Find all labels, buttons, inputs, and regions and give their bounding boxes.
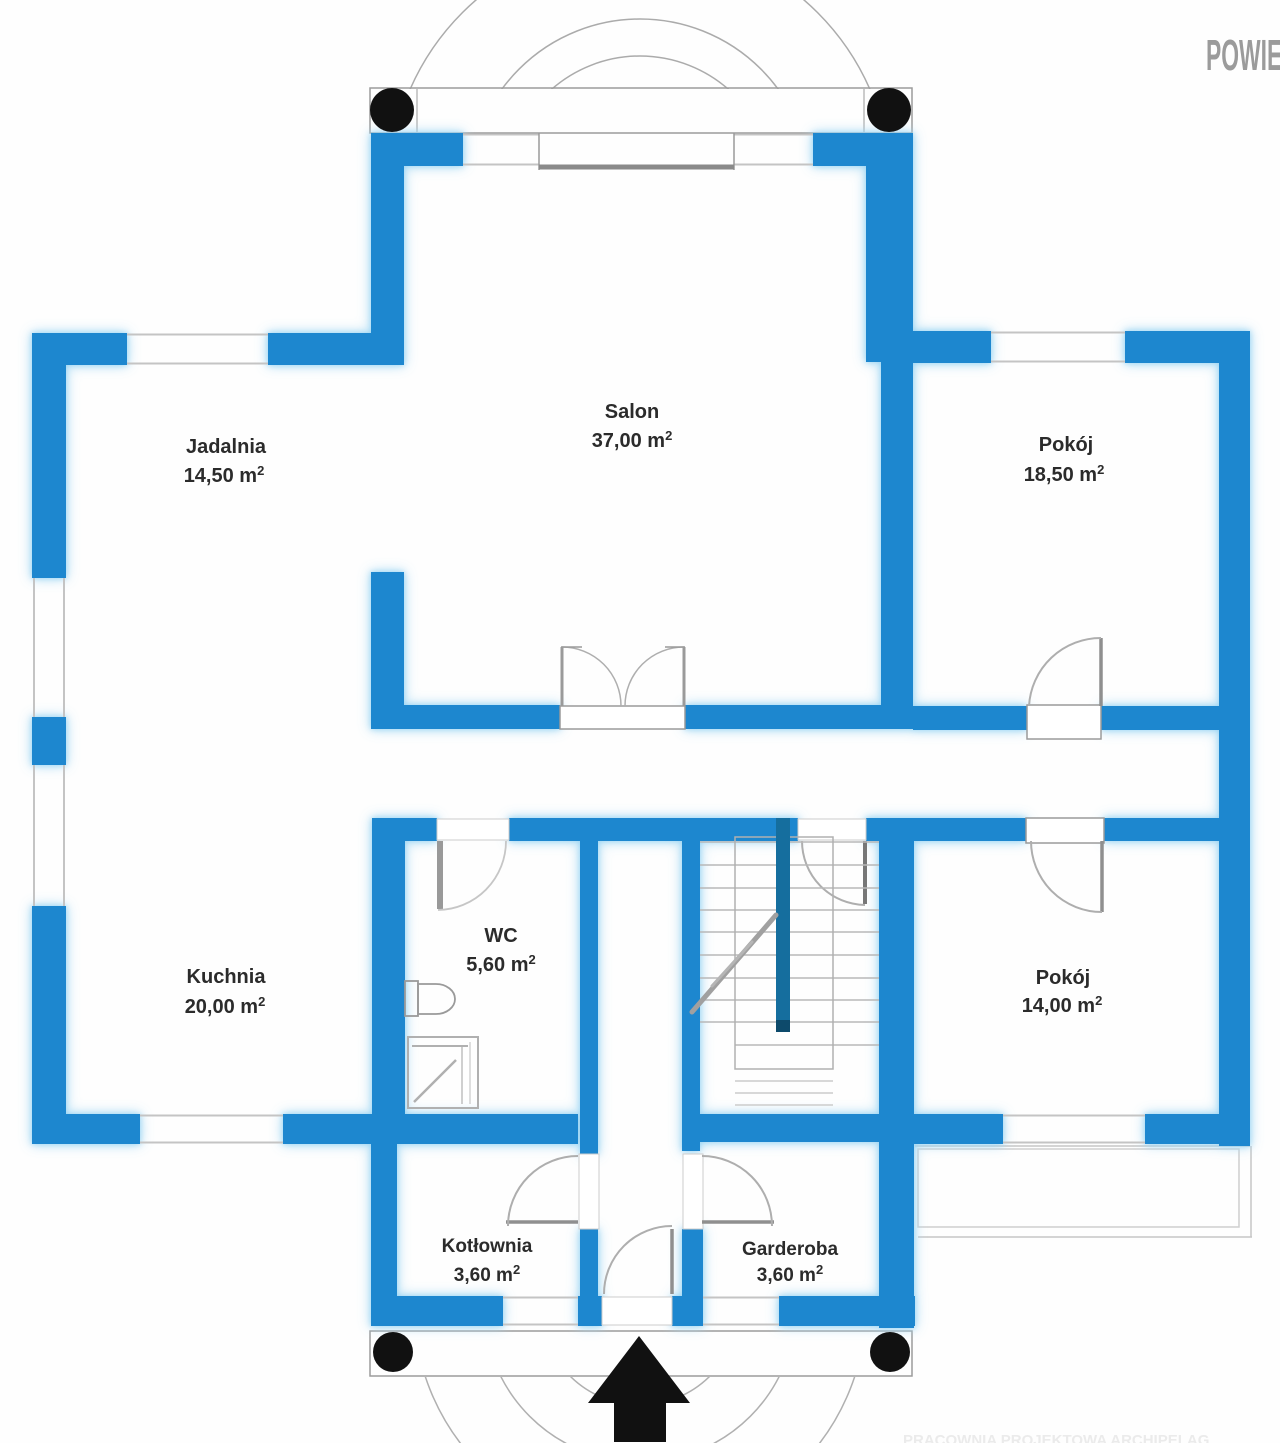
svg-text:3,60 m2: 3,60 m2 (454, 1262, 520, 1286)
svg-text:5,60 m2: 5,60 m2 (466, 952, 536, 976)
svg-text:37,00 m2: 37,00 m2 (592, 428, 673, 452)
svg-text:Garderoba: Garderoba (742, 1239, 839, 1260)
svg-text:Kotłownia: Kotłownia (442, 1236, 533, 1257)
svg-text:Salon: Salon (605, 401, 659, 423)
svg-text:POWIERZCHNIA: POWIERZCHNIA (1206, 31, 1280, 80)
svg-text:Pokój: Pokój (1036, 967, 1090, 989)
svg-text:14,00 m2: 14,00 m2 (1022, 993, 1103, 1017)
svg-text:Pokój: Pokój (1039, 434, 1093, 456)
svg-text:PRACOWNIA PROJEKTOWA ARCHIPELA: PRACOWNIA PROJEKTOWA ARCHIPELAG (903, 1432, 1209, 1443)
svg-text:Jadalnia: Jadalnia (186, 436, 267, 458)
svg-text:WC: WC (484, 925, 517, 947)
svg-text:3,60 m2: 3,60 m2 (757, 1262, 823, 1286)
svg-text:Kuchnia: Kuchnia (187, 966, 267, 988)
svg-text:20,00 m2: 20,00 m2 (185, 994, 266, 1018)
svg-text:14,50 m2: 14,50 m2 (184, 463, 265, 487)
svg-text:18,50 m2: 18,50 m2 (1024, 462, 1105, 486)
